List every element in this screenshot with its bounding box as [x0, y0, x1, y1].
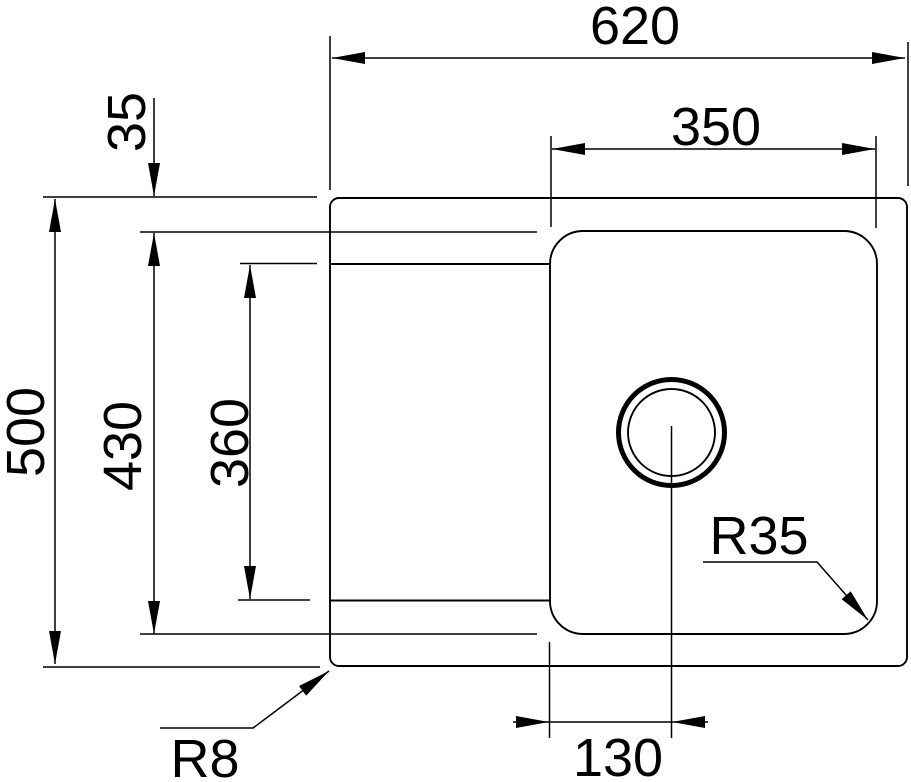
dim-620-arrow-left: [332, 52, 365, 64]
r8-leader-arrow: [299, 671, 329, 696]
callout-bowl-radius: R35: [703, 506, 868, 620]
dim-label-350: 350: [671, 97, 761, 157]
dim-500-arrow-bottom: [49, 631, 61, 664]
dim-label-35: 35: [97, 92, 157, 152]
dim-inner-depth: 360: [200, 264, 317, 601]
dim-500-arrow-top: [49, 199, 61, 232]
r8-leader-line: [160, 671, 329, 728]
dim-620-arrow-right: [872, 52, 905, 64]
dim-label-r8: R8: [170, 729, 239, 782]
dim-label-430: 430: [93, 401, 153, 491]
dim-label-r35: R35: [709, 506, 808, 566]
dim-label-620: 620: [590, 0, 680, 56]
sink-body: [330, 198, 907, 738]
dim-360-arrow-top: [244, 265, 256, 298]
dim-bowl-width: 350: [551, 97, 876, 228]
dim-130-arrow-right: [672, 716, 705, 728]
r35-leader-line: [703, 562, 868, 620]
dim-430-arrow-bottom: [148, 601, 160, 634]
dim-bowl-depth: 430: [93, 232, 537, 634]
dim-360-arrow-bottom: [244, 566, 256, 599]
dim-label-130: 130: [573, 728, 663, 782]
dim-rim-offset: 35: [97, 92, 160, 266]
dim-350-arrow-right: [842, 143, 875, 155]
dim-overall-width: 620: [330, 0, 908, 190]
dim-350-arrow-left: [552, 143, 585, 155]
dim-overall-depth: 500: [0, 197, 320, 667]
dim-130-arrow-left: [516, 716, 549, 728]
callout-outer-radius: R8: [160, 671, 329, 782]
dim-label-500: 500: [0, 387, 56, 477]
sink-technical-drawing: 620 350 35 500 430 3: [0, 0, 911, 782]
dim-drain-offset: 130: [513, 642, 708, 782]
dim-35-arrow-down: [148, 163, 160, 196]
dim-label-360: 360: [200, 398, 260, 488]
technical-drawing-page: 620 350 35 500 430 3: [0, 0, 911, 782]
